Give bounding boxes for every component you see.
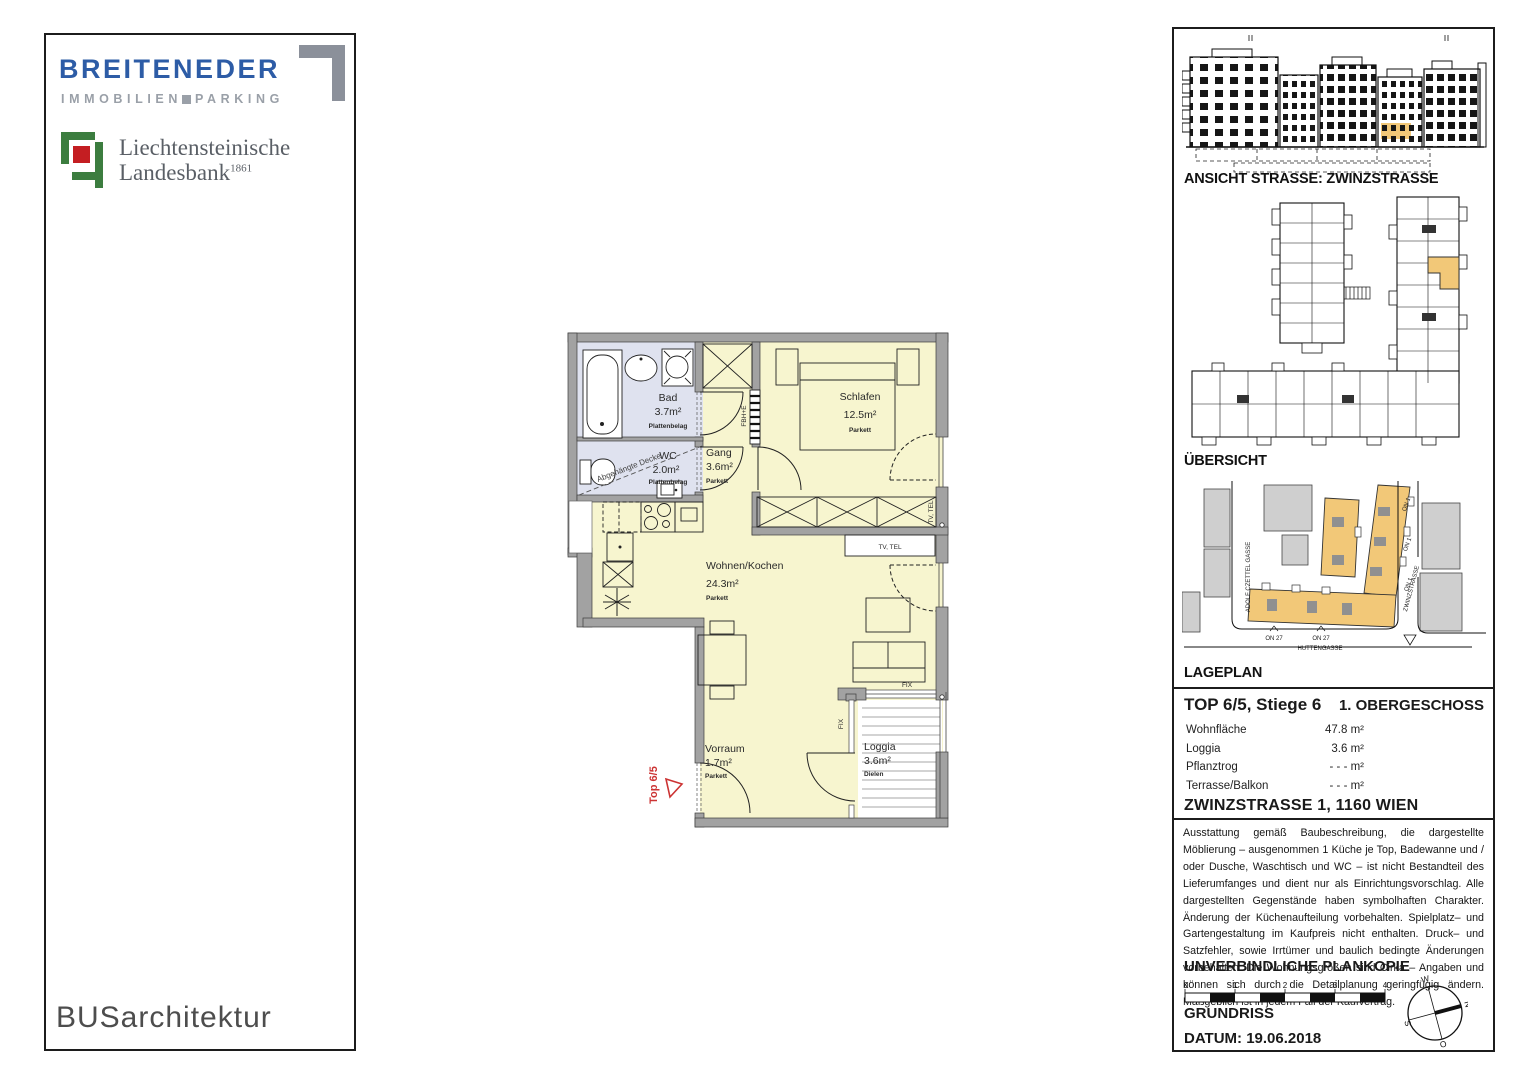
wall-marker-dot [940,523,944,527]
landesbank-name: Liechtensteinische Landesbank1861 [119,136,290,186]
table-row: Pflanztrog - - - m² [1184,761,1484,780]
room-area-wc: 2.0m² [653,464,680,476]
table-row: Loggia 3.6 m² [1184,743,1484,762]
left-logo-panel: BREITENEDER IMMOBILIEN PARKING Liechtens… [44,33,356,1051]
room-label-schlafen: Schlafen [840,391,881,403]
landesbank-icon [59,128,111,190]
table-row: Wohnfläche 47.8 m² [1184,724,1484,743]
scale-tick-3: 3 [1333,981,1338,990]
divider-line [1174,687,1493,689]
fix-glazing-label-vertical: FIX [838,718,845,729]
tv-tel-wall-label: TV, TEL [928,500,935,524]
detail-label: Terrasse/Balkon [1186,780,1268,792]
washing-machine [662,349,693,386]
landesbank-year: 1861 [230,162,252,174]
unit-entrance-marker: Top 6/5 [648,766,682,804]
room-floor-vorraum: Parkett [705,773,728,780]
room-label-wc: WC [659,450,677,462]
on1-label-b: ON 1 [1403,536,1414,552]
apartment-floorplan-drawing: Bad 3.7m² Plattenbelag WC 2.0m² Plattenb… [562,326,964,834]
site-building-right-wing [1364,485,1410,597]
street-label-left: ADOLF CZETTEL GASSE [1246,542,1252,612]
heating-label: FBH+E [741,405,748,427]
room-floor-bad: Plattenbelag [649,423,688,430]
wall-niche [569,501,592,553]
tagline-parking: PARKING [195,92,284,106]
room-area-schlafen: 12.5m² [844,409,877,421]
room-area-bad: 3.7m² [655,406,682,418]
wall-marker-dot [940,695,944,699]
plan-document-page: { "left_panel": { "brand": "BREITENEDER"… [0,0,1527,1080]
tv-tel-box-label: TV, TEL [878,544,902,551]
tagline-immobilien: IMMOBILIEN [61,92,182,106]
scale-tick-1: 1 [1233,981,1238,990]
unit-title: TOP 6/5, Stiege 6 [1184,695,1321,715]
area-details-table: Wohnfläche 47.8 m² Loggia 3.6 m² Pflanzt… [1184,724,1484,798]
breiteneder-tagline: IMMOBILIEN PARKING [61,92,345,106]
radiator-fbhe [750,390,760,444]
room-label-vorraum: Vorraum [705,743,745,755]
detail-value: - - - m² [1272,761,1364,773]
compass-w: W [1420,973,1430,985]
compass-n: N [1462,1000,1468,1009]
scale-bar: 0 1 2 3 4 [1182,980,1392,1006]
floor-overview-drawing [1182,195,1488,447]
room-floor-schlafen: Parkett [849,427,872,434]
site-building-center [1321,498,1359,577]
compass-rose-icon: W N S O [1402,972,1468,1050]
bathtub [583,350,622,438]
on27-label-a: ON 27 [1265,636,1283,642]
project-address: ZWINZSTRASSE 1, 1160 WIEN [1184,797,1418,815]
lageplan-section-label: LAGEPLAN [1184,665,1262,681]
uebersicht-section-label: ÜBERSICHT [1184,453,1267,469]
fix-glazing-label-horizontal: FIX [902,682,913,689]
site-plan-drawing: ADOLF CZETTEL GASSE ZWINZSTRASSE ON 1 ON… [1182,477,1488,657]
detail-label: Wohnfläche [1186,724,1247,736]
detail-value: 47.8 m² [1272,724,1364,736]
room-label-gang: Gang [706,447,732,459]
room-label-bad: Bad [659,392,678,404]
room-floor-wc: Plattenbelag [649,479,688,486]
room-area-loggia: 3.6m² [864,755,891,767]
street-label-bottom: HUTTENGASSE [1297,646,1342,652]
right-info-panel: ANSICHT STRASSE: ZWINZSTRASSE [1172,27,1495,1052]
divider-line [1174,818,1493,820]
landesbank-logo: Liechtensteinische Landesbank1861 [59,128,290,190]
street-elevation-drawing [1182,35,1488,175]
square-separator-icon [182,95,191,104]
busarchitektur-logo: BUSarchitektur [56,1001,272,1035]
room-area-wohnen: 24.3m² [706,578,739,590]
ansicht-section-label: ANSICHT STRASSE: ZWINZSTRASSE [1184,171,1438,187]
unit-marker-text: Top 6/5 [648,766,660,804]
detail-label: Pflanztrog [1186,761,1238,773]
on27-label-b: ON 27 [1312,636,1330,642]
room-label-loggia: Loggia [864,741,896,753]
compass-o: O [1439,1038,1448,1049]
scale-tick-0: 0 [1184,981,1189,990]
detail-value: 3.6 m² [1272,743,1364,755]
unit-header: TOP 6/5, Stiege 6 1. OBERGESCHOSS [1184,695,1484,715]
room-area-vorraum: 1.7m² [705,757,732,769]
scale-tick-4: 4 [1383,981,1388,990]
plan-copy-label: UNVERBINDLICHE PLANKOPIE [1184,958,1410,975]
scale-tick-2: 2 [1283,981,1288,990]
table-row: Terrasse/Balkon - - - m² [1184,780,1484,799]
drawing-type-label: GRUNDRISS [1184,1005,1274,1022]
room-floor-gang: Parkett [706,478,729,485]
room-floor-loggia: Dielen [864,771,884,778]
detail-label: Loggia [1186,743,1221,755]
date-label: DATUM: 19.06.2018 [1184,1030,1321,1047]
breiteneder-logo-text: BREITENEDER [59,54,280,85]
room-label-wohnen: Wohnen/Kochen [706,560,784,572]
floor-title: 1. OBERGESCHOSS [1339,697,1484,714]
room-area-gang: 3.6m² [706,461,733,473]
room-floor-wohnen: Parkett [706,595,729,602]
detail-value: - - - m² [1272,780,1364,792]
bathroom-sink [625,355,657,381]
